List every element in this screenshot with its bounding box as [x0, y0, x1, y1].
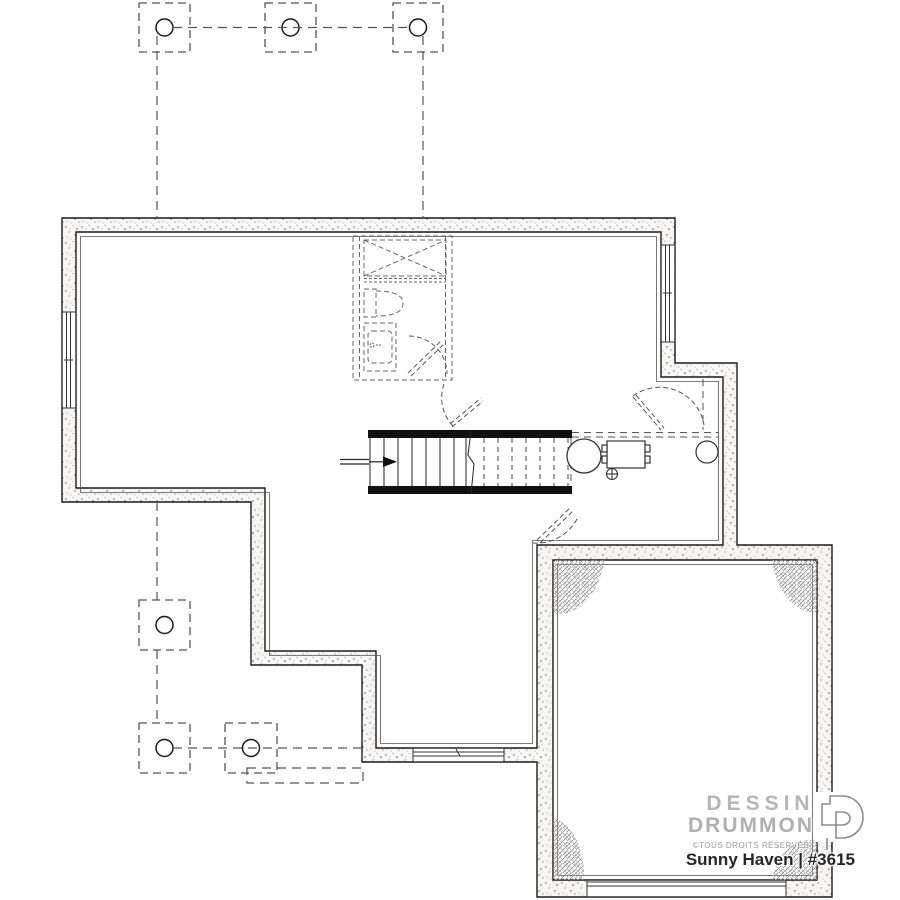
- window-right-wall: [661, 245, 675, 342]
- door-swings: [408, 336, 704, 543]
- garage-overhead-door: [587, 880, 786, 897]
- brand-name-line2: DRUMMOND: [688, 814, 828, 838]
- hatch-garage-top-left: [553, 560, 605, 614]
- window-bottom-wall: [413, 748, 504, 762]
- floor-plan-drawing: [0, 0, 900, 900]
- openings: [62, 245, 786, 897]
- future-bathroom-rough-in: [353, 236, 452, 380]
- stair-stringer-bottom: [368, 486, 572, 494]
- column-footings: [139, 3, 443, 783]
- tub-shower: [364, 240, 446, 282]
- window-left-wall: [62, 312, 76, 408]
- mechanical-area: [567, 379, 719, 486]
- drummond-d-logo-icon: [812, 782, 868, 857]
- copyright-notice: ©TOUS DROITS RÉSERVÉS: [688, 841, 814, 850]
- door-swing-right-wall: [633, 387, 704, 430]
- staircase: [340, 430, 572, 494]
- hatch-garage-top-right: [772, 560, 817, 612]
- sump-pit: [696, 441, 718, 463]
- column-bottom-1: [156, 740, 173, 757]
- furnace-unit: [602, 441, 650, 468]
- column-top-3: [410, 19, 427, 36]
- floor-drain: [607, 469, 618, 480]
- hatch-garage-bottom-left: [553, 818, 584, 880]
- stair-break-line: [468, 431, 474, 494]
- toilet: [364, 289, 403, 317]
- sink-vanity: [364, 323, 396, 371]
- door-swing-hall: [442, 384, 483, 427]
- stair-direction-arrow: [340, 457, 397, 468]
- floor-plan-sheet: DESSINS DRUMMOND ©TOUS DROITS RÉSERVÉS S…: [0, 0, 900, 900]
- column-top-1: [156, 19, 173, 36]
- stair-treads-dashed: [484, 438, 568, 486]
- column-left: [156, 617, 173, 634]
- water-heater: [567, 439, 601, 473]
- porch-outline-dashed: [157, 28, 423, 784]
- deck-outline-dashed: [247, 768, 363, 783]
- door-swing-garage-entry: [533, 508, 577, 543]
- door-swing-bathroom: [408, 336, 447, 376]
